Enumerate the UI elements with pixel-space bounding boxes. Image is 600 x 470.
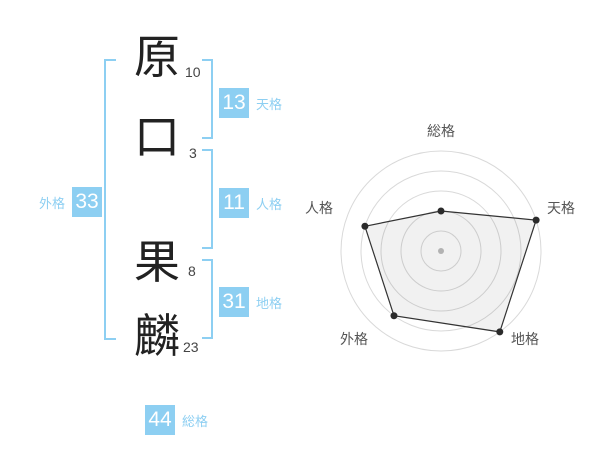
radar-axis-label: 人格 xyxy=(305,200,333,216)
radar-axis-label: 地格 xyxy=(511,331,539,347)
radar-axis-label: 総格 xyxy=(427,123,455,139)
radar-data-point xyxy=(496,328,503,335)
radar-data-polygon xyxy=(365,211,536,332)
radar-data-point xyxy=(533,217,540,224)
radar-axis-label: 外格 xyxy=(340,331,368,347)
fortune-radar-chart: 総格天格地格外格人格 xyxy=(0,0,600,470)
radar-data-point xyxy=(361,223,368,230)
radar-axis-label: 天格 xyxy=(547,200,575,216)
radar-data-point xyxy=(390,312,397,319)
radar-data-point xyxy=(438,208,445,215)
name-analysis-panel: 原 口 果 麟 10 3 8 23 13 天格 11 人格 31 地格 外格 3… xyxy=(0,0,600,470)
